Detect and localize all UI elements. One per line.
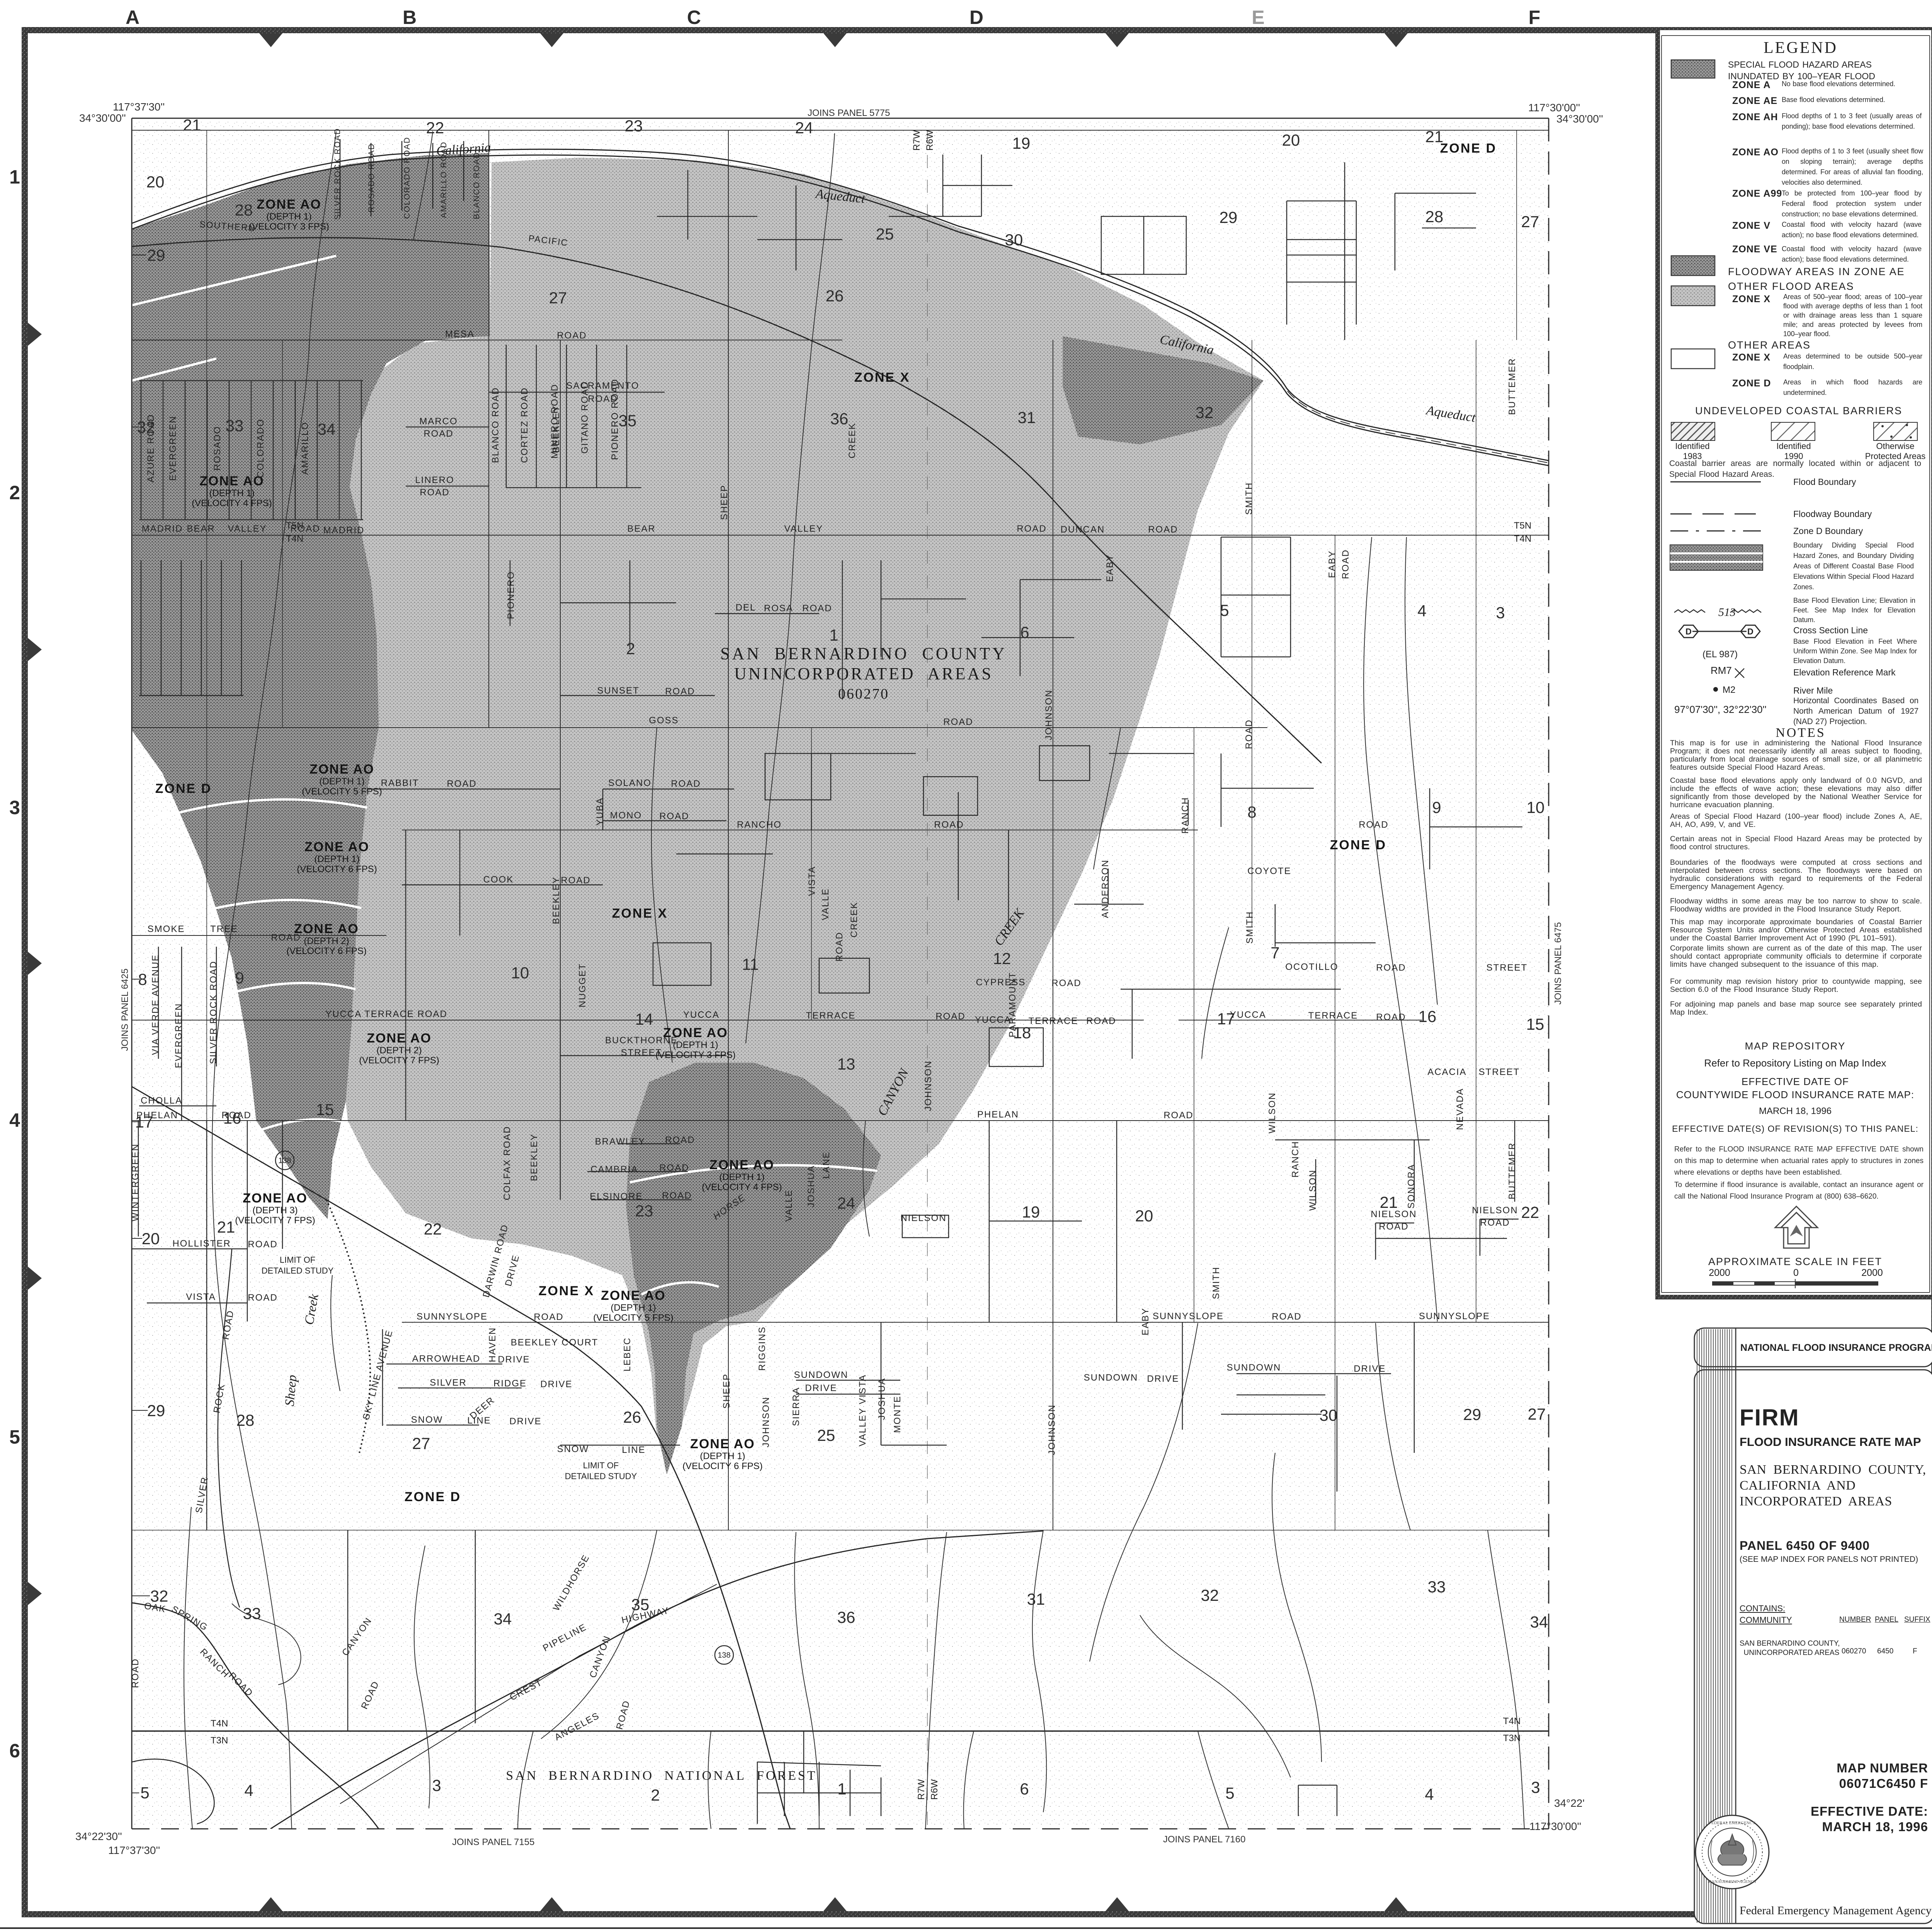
svg-text:5: 5 [9,1426,20,1448]
svg-text:ROSADO: ROSADO [212,426,223,471]
svg-text:TERRACE: TERRACE [1308,1010,1358,1021]
svg-text:ROAD: ROAD [659,1163,689,1173]
svg-text:19: 19 [1022,1203,1040,1221]
svg-text:34: 34 [1530,1613,1548,1631]
svg-text:30: 30 [1005,231,1023,249]
svg-text:14: 14 [635,1010,653,1028]
svg-text:ROAD: ROAD [1340,549,1351,579]
svg-text:SILVER ROCK ROAD: SILVER ROCK ROAD [333,128,342,220]
svg-text:MANAGEMENT AGENCY: MANAGEMENT AGENCY [1708,1879,1757,1884]
svg-text:SACRAMENTO: SACRAMENTO [566,381,639,391]
svg-text:ACACIA: ACACIA [1427,1067,1466,1077]
svg-text:ROAD: ROAD [420,487,449,498]
svg-text:ROAD: ROAD [221,1110,251,1121]
svg-text:22: 22 [426,119,444,137]
svg-text:YUCCA: YUCCA [1230,1010,1266,1020]
svg-text:ELSINORE: ELSINORE [590,1191,643,1202]
svg-text:EABY: EABY [1140,1308,1151,1335]
svg-text:VIA VERDE AVENUE: VIA VERDE AVENUE [150,954,161,1055]
svg-text:BLANCO ROAD: BLANCO ROAD [490,387,501,463]
svg-text:SUNNYSLOPE: SUNNYSLOPE [417,1311,488,1322]
svg-text:6: 6 [9,1740,20,1762]
svg-text:CYPRESS: CYPRESS [976,977,1026,988]
svg-text:ROAD: ROAD [834,932,845,961]
svg-text:ROAD: ROAD [271,932,301,943]
svg-text:ROSADO ROAD: ROSADO ROAD [367,143,376,213]
svg-text:(VELOCITY 6 FPS): (VELOCITY 6 FPS) [286,946,367,956]
svg-text:DRIVE: DRIVE [540,1379,572,1389]
svg-text:YUCCA TERRACE ROAD: YUCCA TERRACE ROAD [325,1009,447,1019]
svg-text:VALLE: VALLE [784,1190,794,1222]
svg-text:ZONE AO: ZONE AO [257,197,321,212]
svg-text:MONO: MONO [610,810,642,821]
svg-text:(DEPTH 1): (DEPTH 1) [266,211,311,222]
svg-text:RANCH: RANCH [1180,797,1190,833]
svg-text:HAVEN: HAVEN [487,1327,498,1362]
svg-text:BUTTEMER: BUTTEMER [1507,1142,1517,1199]
svg-text:4: 4 [1417,602,1426,620]
svg-text:(VELOCITY 7 FPS): (VELOCITY 7 FPS) [359,1055,439,1066]
svg-text:BEAR: BEAR [627,524,655,534]
svg-text:ROAD: ROAD [1244,719,1254,749]
svg-text:3: 3 [1496,604,1505,622]
svg-text:31: 31 [1018,408,1036,427]
svg-text:ROAD: ROAD [935,1011,965,1022]
svg-text:LEBEC: LEBEC [622,1337,633,1372]
svg-text:3: 3 [432,1776,441,1794]
svg-text:JOSHUA: JOSHUA [877,1378,887,1420]
svg-text:SMOKE: SMOKE [148,924,185,934]
svg-text:PIONERO: PIONERO [506,571,516,619]
svg-text:STREET: STREET [1479,1067,1520,1077]
svg-text:36: 36 [830,410,849,428]
svg-text:ZONE D: ZONE D [405,1490,461,1504]
svg-text:5: 5 [1220,601,1229,619]
svg-text:MESA: MESA [445,329,474,339]
svg-text:(DEPTH 1): (DEPTH 1) [719,1172,764,1182]
svg-text:(EL 987): (EL 987) [1702,649,1738,660]
svg-text:SILVER ROCK ROAD: SILVER ROCK ROAD [208,961,219,1064]
svg-text:SIERRA: SIERRA [791,1387,801,1426]
svg-text:4: 4 [1425,1785,1434,1803]
svg-text:SHEEP: SHEEP [719,485,730,520]
svg-text:20: 20 [146,173,165,191]
svg-text:SILVER: SILVER [430,1378,467,1388]
svg-text:R6W: R6W [929,1779,940,1800]
svg-text:34°22': 34°22' [1554,1797,1585,1809]
svg-text:ROAD: ROAD [557,330,587,341]
svg-text:DETAILED STUDY: DETAILED STUDY [262,1266,334,1276]
svg-text:22: 22 [424,1220,442,1238]
svg-text:2: 2 [9,482,20,503]
svg-text:R7W: R7W [916,1779,927,1800]
svg-text:27: 27 [1528,1405,1546,1423]
svg-text:T5N: T5N [1514,520,1531,531]
svg-text:513: 513 [1718,606,1736,619]
svg-text:ZONE AO: ZONE AO [199,474,264,488]
svg-text:(VELOCITY 3 FPS): (VELOCITY 3 FPS) [655,1050,736,1060]
svg-text:D: D [969,7,983,28]
svg-text:9: 9 [235,969,244,987]
svg-text:6: 6 [1020,1780,1029,1798]
svg-text:ROAD: ROAD [1017,524,1046,534]
svg-text:138: 138 [278,1156,291,1165]
svg-text:2: 2 [651,1786,660,1804]
svg-text:MONTE: MONTE [892,1396,903,1433]
svg-text:BEEKLEY: BEEKLEY [551,876,561,924]
svg-text:21: 21 [1425,128,1444,146]
svg-text:4: 4 [244,1781,253,1799]
svg-text:16: 16 [1418,1007,1437,1026]
svg-text:ROAD: ROAD [423,429,453,439]
svg-text:ROAD: ROAD [934,820,964,830]
svg-text:RIGGINS: RIGGINS [757,1326,767,1371]
svg-text:30: 30 [1320,1406,1338,1424]
svg-text:(VELOCITY 5 FPS): (VELOCITY 5 FPS) [302,786,382,797]
svg-text:ZONE AO: ZONE AO [709,1158,774,1172]
svg-text:ZONE AO: ZONE AO [367,1031,432,1046]
svg-text:1: 1 [829,626,838,644]
svg-text:LINERO: LINERO [415,475,454,485]
svg-text:27: 27 [412,1434,430,1452]
svg-text:34: 34 [318,420,336,438]
svg-text:117°37'30'': 117°37'30'' [108,1844,160,1856]
svg-text:(DEPTH 1): (DEPTH 1) [673,1040,718,1050]
svg-text:10: 10 [511,964,529,982]
svg-text:ROAD: ROAD [662,1190,692,1201]
svg-text:ROAD: ROAD [665,1135,695,1145]
svg-text:ROAD: ROAD [248,1293,277,1303]
svg-text:27: 27 [549,289,567,307]
svg-text:9: 9 [1432,798,1441,816]
svg-text:22: 22 [1521,1203,1539,1221]
svg-text:20: 20 [1135,1207,1153,1225]
svg-text:19: 19 [1012,134,1031,152]
svg-text:ROAD: ROAD [1148,524,1178,535]
svg-text:138: 138 [718,1651,730,1660]
svg-text:BEEKLEY COURT: BEEKLEY COURT [511,1337,599,1348]
svg-text:T3N: T3N [1503,1733,1520,1743]
svg-text:ZONE X: ZONE X [539,1284,595,1298]
svg-text:117°37'30'': 117°37'30'' [113,101,165,113]
svg-text:RIDGE: RIDGE [493,1378,527,1389]
svg-text:ROAD: ROAD [130,1658,141,1688]
svg-text:ROAD: ROAD [665,686,695,697]
svg-text:ROAD: ROAD [943,717,973,727]
svg-text:21: 21 [217,1218,235,1236]
svg-text:ROAD: ROAD [1086,1016,1116,1026]
svg-text:4: 4 [9,1109,20,1131]
svg-text:PHELAN: PHELAN [136,1110,178,1121]
svg-text:EVERGREEN: EVERGREEN [168,416,178,481]
svg-text:SUNNYSLOPE: SUNNYSLOPE [1153,1311,1224,1321]
svg-text:32: 32 [1196,403,1214,422]
svg-text:M2: M2 [1723,685,1735,695]
svg-text:(DEPTH 1): (DEPTH 1) [209,488,254,498]
svg-text:T4N: T4N [1514,534,1531,544]
svg-text:PIONERO ROAD: PIONERO ROAD [610,379,620,460]
svg-text:FEDERAL EMERGENCY: FEDERAL EMERGENCY [1709,1821,1755,1825]
svg-text:2: 2 [626,639,635,658]
svg-text:C: C [687,7,701,28]
svg-text:ZONE AO: ZONE AO [294,922,359,936]
svg-text:3: 3 [9,797,20,818]
svg-text:RM7: RM7 [1711,665,1732,676]
svg-text:36: 36 [837,1608,855,1626]
svg-text:26: 26 [826,287,844,305]
svg-text:RANCH: RANCH [1290,1141,1301,1177]
svg-text:ROAD: ROAD [1359,820,1388,830]
svg-text:(DEPTH 1): (DEPTH 1) [700,1451,745,1461]
svg-text:STREET: STREET [1486,963,1528,973]
svg-text:JOINS PANEL 6475: JOINS PANEL 6475 [1553,922,1563,1005]
svg-text:ROAD: ROAD [248,1239,277,1250]
svg-text:WINTERGREEN: WINTERGREEN [130,1143,141,1221]
svg-text:JOINS PANEL 7155: JOINS PANEL 7155 [452,1837,534,1847]
svg-text:JOSHUA: JOSHUA [806,1165,816,1207]
svg-text:SMITH: SMITH [1245,911,1255,944]
svg-text:RABBIT: RABBIT [381,778,419,788]
svg-text:UNINCORPORATED AREAS: UNINCORPORATED AREAS [734,664,993,683]
svg-text:35: 35 [619,412,637,430]
svg-text:BUTTEMER: BUTTEMER [1507,358,1517,415]
svg-text:AMARILLO: AMARILLO [300,422,310,474]
svg-text:CREEK: CREEK [849,902,859,938]
svg-text:LIMIT OF: LIMIT OF [280,1255,316,1265]
svg-text:NIELSON: NIELSON [1472,1205,1518,1216]
svg-text:34: 34 [494,1610,512,1628]
svg-text:RANCHO: RANCHO [737,820,782,830]
svg-text:ZONE AO: ZONE AO [690,1437,755,1451]
svg-text:21: 21 [183,116,201,134]
svg-text:32: 32 [1201,1586,1219,1604]
svg-text:T4N: T4N [1503,1716,1520,1726]
svg-text:SAN BERNARDINO NATIONAL FOR: SAN BERNARDINO NATIONAL FOREST [506,1769,817,1783]
svg-text:(VELOCITY 4 FPS): (VELOCITY 4 FPS) [192,498,272,509]
svg-text:29: 29 [1219,208,1238,226]
svg-text:10: 10 [1527,798,1545,816]
svg-text:D: D [1747,627,1753,636]
svg-text:ROAD: ROAD [1051,978,1081,988]
svg-text:21: 21 [1380,1193,1398,1211]
svg-text:CORTEZ ROAD: CORTEZ ROAD [519,387,530,463]
svg-text:BEAR: BEAR [187,524,215,534]
svg-text:CAMBRIA: CAMBRIA [590,1164,638,1175]
svg-text:JOHNSON: JOHNSON [761,1396,771,1447]
svg-text:ROAD: ROAD [802,603,832,614]
svg-text:ARROWHEAD: ARROWHEAD [412,1354,481,1364]
svg-text:8: 8 [1247,803,1256,821]
svg-text:COLORADO ROAD: COLORADO ROAD [403,137,412,219]
svg-text:31: 31 [1027,1590,1045,1608]
svg-text:T4N: T4N [286,534,303,544]
svg-text:29: 29 [147,246,165,264]
svg-text:20: 20 [142,1230,160,1248]
svg-text:ZONE AO: ZONE AO [243,1191,308,1206]
svg-text:(VELOCITY 3 FPS): (VELOCITY 3 FPS) [249,221,329,232]
svg-text:CHOLLA: CHOLLA [141,1095,182,1106]
svg-text:15: 15 [1526,1015,1544,1033]
svg-text:NEVADA: NEVADA [1455,1088,1465,1130]
svg-text:STREET: STREET [621,1048,662,1058]
svg-text:VALLEY VISTA: VALLEY VISTA [857,1374,868,1447]
svg-text:JOINS PANEL 5775: JOINS PANEL 5775 [808,108,890,118]
svg-text:B: B [403,7,417,28]
svg-text:34°22'30'': 34°22'30'' [75,1830,122,1842]
svg-text:13: 13 [837,1055,855,1073]
svg-text:TREE: TREE [210,924,238,934]
svg-text:15: 15 [316,1100,334,1119]
svg-text:EABY: EABY [1327,550,1337,578]
svg-text:LIMIT OF: LIMIT OF [583,1461,619,1470]
svg-text:28: 28 [235,201,253,219]
svg-text:DRIVE: DRIVE [1147,1374,1179,1384]
svg-text:(VELOCITY 7 FPS): (VELOCITY 7 FPS) [235,1215,315,1226]
svg-text:WILSON: WILSON [1267,1092,1277,1134]
svg-text:(DEPTH 1): (DEPTH 1) [314,854,359,864]
svg-text:SUNDOWN: SUNDOWN [1227,1362,1281,1373]
svg-text:117°30'00'': 117°30'00'' [1528,102,1580,114]
svg-text:CREEK: CREEK [847,423,857,459]
svg-text:26: 26 [623,1408,641,1426]
svg-text:JOINS PANEL 7160: JOINS PANEL 7160 [1163,1834,1245,1845]
svg-text:ZONE D: ZONE D [1330,838,1386,852]
svg-text:DRIVE: DRIVE [1354,1364,1386,1374]
svg-text:SUNDOWN: SUNDOWN [1084,1372,1138,1383]
svg-text:BLANCO ROAD: BLANCO ROAD [472,152,481,219]
svg-text:TERRACE: TERRACE [806,1010,856,1021]
svg-text:R6W: R6W [925,130,935,151]
svg-text:6: 6 [1020,623,1029,641]
svg-text:DETAILED STUDY: DETAILED STUDY [565,1471,637,1481]
svg-text:(DEPTH 3): (DEPTH 3) [252,1205,298,1216]
svg-text:(VELOCITY 6 FPS): (VELOCITY 6 FPS) [297,864,377,874]
svg-text:ROAD: ROAD [1379,1221,1408,1232]
svg-text:ZONE X: ZONE X [612,906,668,921]
svg-text:MADRID: MADRID [323,525,365,536]
svg-text:PHELAN: PHELAN [977,1109,1019,1120]
svg-text:SUNDOWN: SUNDOWN [794,1370,849,1380]
svg-text:2000: 2000 [1709,1267,1730,1278]
svg-text:ZONE X: ZONE X [854,370,910,385]
svg-text:ROSA: ROSA [764,603,793,614]
svg-text:BEEKLEY: BEEKLEY [529,1133,539,1181]
svg-text:TERRACE: TERRACE [1029,1016,1078,1026]
svg-text:OCOTILLO: OCOTILLO [1285,962,1338,972]
svg-text:33: 33 [1428,1578,1446,1596]
svg-text:33: 33 [243,1604,261,1622]
svg-text:NIELSON: NIELSON [900,1213,946,1223]
svg-text:ZONE D: ZONE D [155,781,212,796]
svg-text:COLFAX ROAD: COLFAX ROAD [502,1126,512,1201]
svg-text:ROAD: ROAD [659,811,689,821]
svg-text:COYOTE: COYOTE [1247,866,1291,876]
svg-text:SHEEP: SHEEP [721,1373,732,1408]
svg-text:ROAD: ROAD [1376,963,1406,973]
svg-text:5: 5 [1225,1784,1234,1802]
svg-text:LANE: LANE [821,1151,832,1179]
svg-text:ROAD: ROAD [1272,1311,1301,1322]
svg-text:12: 12 [993,949,1011,968]
svg-text:34°30'00'': 34°30'00'' [79,112,126,124]
svg-text:ROAD: ROAD [671,779,701,789]
svg-text:MARCO: MARCO [419,416,457,427]
svg-text:SMITH: SMITH [1211,1267,1221,1299]
svg-text:ROAD: ROAD [1163,1110,1193,1121]
svg-text:NUGGET: NUGGET [577,963,588,1008]
svg-text:ANDERSON: ANDERSON [1100,859,1111,918]
svg-text:BUCKTHORNE: BUCKTHORNE [605,1035,678,1046]
svg-text:A: A [126,7,139,28]
svg-text:ROAD: ROAD [1376,1012,1406,1022]
svg-text:ROAD: ROAD [561,875,590,886]
svg-text:COLORADO: COLORADO [255,418,266,478]
svg-text:(DEPTH 2): (DEPTH 2) [376,1045,422,1056]
svg-text:JOINS PANEL 6425: JOINS PANEL 6425 [120,969,130,1051]
svg-text:YUBA: YUBA [595,797,605,825]
svg-text:COOK: COOK [483,874,514,885]
svg-text:ROAD: ROAD [1480,1218,1510,1228]
svg-text:GOSS: GOSS [649,715,679,726]
svg-text:D: D [1685,627,1692,636]
svg-text:SNOW: SNOW [557,1444,589,1454]
svg-text:97°07'30'', 32°22'30'': 97°07'30'', 32°22'30'' [1674,704,1767,715]
svg-text:YUCCA: YUCCA [975,1015,1011,1025]
svg-text:ROAD: ROAD [534,1312,563,1322]
svg-text:33: 33 [226,417,244,435]
svg-text:060270: 060270 [838,686,889,702]
svg-text:29: 29 [147,1401,165,1420]
svg-text:JOHNSON: JOHNSON [1047,1404,1057,1455]
svg-text:Sheep: Sheep [282,1374,299,1407]
svg-text:T4N: T4N [211,1718,228,1729]
svg-text:2000: 2000 [1861,1267,1883,1278]
svg-text:23: 23 [635,1202,653,1220]
svg-text:HOLLISTER: HOLLISTER [172,1238,231,1249]
svg-text:VISTA: VISTA [186,1292,216,1302]
svg-text:SMITH: SMITH [1244,482,1254,515]
svg-text:(VELOCITY 6 FPS): (VELOCITY 6 FPS) [682,1461,763,1471]
svg-text:PARAMOUNT: PARAMOUNT [1007,972,1018,1037]
svg-text:28: 28 [236,1411,255,1429]
svg-text:(VELOCITY 5 FPS): (VELOCITY 5 FPS) [593,1313,673,1323]
svg-text:R7W: R7W [912,130,922,151]
svg-text:ROAD: ROAD [447,779,476,789]
svg-text:VALLEY: VALLEY [228,524,267,534]
svg-text:ZONE AO: ZONE AO [304,840,369,854]
svg-text:ZONE AO: ZONE AO [601,1288,666,1303]
svg-text:1: 1 [9,166,20,188]
svg-text:BEEKLEY: BEEKLEY [551,405,561,452]
svg-text:EABY: EABY [1105,554,1115,582]
svg-text:SNOW: SNOW [411,1415,443,1425]
svg-text:0: 0 [1793,1267,1799,1278]
svg-text:DEL: DEL [736,602,756,613]
svg-text:24: 24 [795,119,813,137]
svg-text:3: 3 [1531,1778,1540,1796]
svg-text:VALLEY: VALLEY [784,524,823,534]
svg-text:23: 23 [625,117,643,135]
svg-text:JOHNSON: JOHNSON [1044,689,1054,740]
svg-text:SOLANO: SOLANO [608,778,651,788]
svg-text:SAN BERNARDINO COUNTY: SAN BERNARDINO COUNTY [720,644,1007,663]
svg-text:27: 27 [1521,213,1539,231]
svg-text:LINE: LINE [622,1445,645,1455]
svg-text:(VELOCITY 4 FPS): (VELOCITY 4 FPS) [702,1182,782,1192]
svg-text:25: 25 [817,1426,835,1444]
svg-text:EVERGREEN: EVERGREEN [173,1003,184,1068]
svg-text:28: 28 [1425,207,1444,226]
